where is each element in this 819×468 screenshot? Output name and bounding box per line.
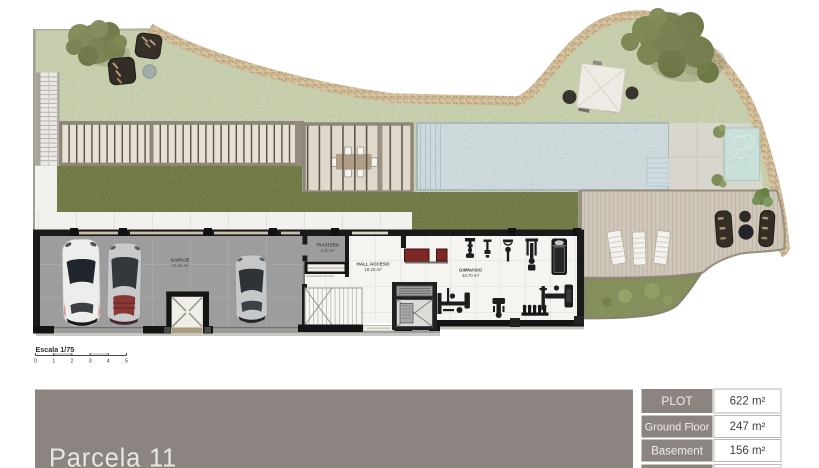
svg-text:2: 2	[70, 359, 73, 365]
svg-text:Basement: Basement	[651, 446, 704, 458]
svg-text:156 m²: 156 m²	[730, 445, 766, 457]
svg-text:247 m²: 247 m²	[730, 421, 766, 433]
svg-text:Parcela 11: Parcela 11	[49, 445, 177, 468]
svg-text:71.10 m²: 71.10 m²	[171, 263, 189, 268]
svg-text:Ground Floor: Ground Floor	[645, 422, 710, 434]
svg-text:43.70 m²: 43.70 m²	[462, 273, 480, 278]
svg-text:1: 1	[52, 359, 55, 365]
svg-text:PLOT: PLOT	[661, 394, 693, 408]
svg-text:622 m²: 622 m²	[730, 396, 766, 408]
svg-text:GIMNASIO: GIMNASIO	[459, 268, 483, 273]
svg-text:3: 3	[89, 359, 92, 365]
svg-text:0: 0	[34, 359, 37, 365]
svg-text:TRASTERO: TRASTERO	[316, 243, 340, 248]
svg-text:HALL ACCESO: HALL ACCESO	[357, 262, 390, 267]
svg-text:Escala 1/75: Escala 1/75	[36, 345, 75, 354]
svg-text:GARAJE: GARAJE	[170, 258, 189, 263]
svg-text:3.20 m²: 3.20 m²	[321, 248, 336, 253]
svg-text:4: 4	[107, 359, 110, 365]
svg-text:5: 5	[125, 359, 128, 365]
svg-text:18.20 m²: 18.20 m²	[364, 267, 382, 272]
